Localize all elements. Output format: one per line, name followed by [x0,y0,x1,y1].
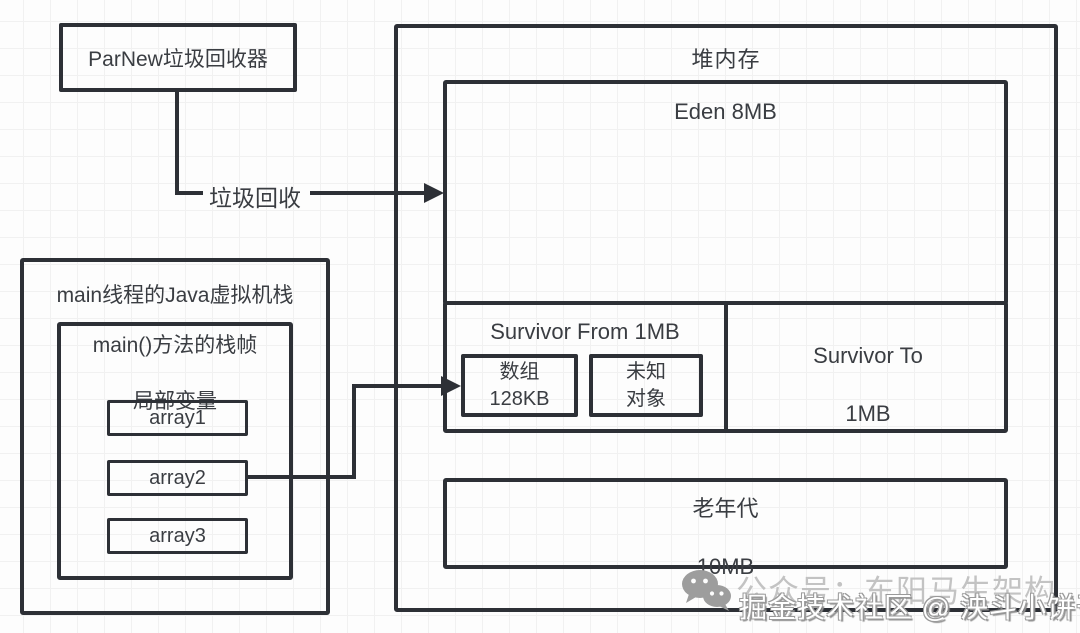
parnew-collector-label: ParNew垃圾回收器 [88,43,268,73]
eden-label: Eden 8MB [443,99,1008,125]
survivor-from-label: Survivor From 1MB [443,319,727,345]
var-label-array2: array2 [149,467,206,490]
var-label-array1: array1 [149,407,206,430]
heap-title: 堆内存 [394,42,1058,74]
var-box-array3: array3 [107,518,248,554]
survivor-to-label: Survivor To 1MB [728,341,1008,428]
ref-arrow-segment-b [352,384,442,388]
array-object-label: 数组 128KB [489,359,549,413]
survivor-to-line1: Survivor To [813,343,923,368]
unknown-object-line2: 对象 [626,388,666,410]
array-object-box: 数组 128KB [461,354,578,417]
gc-arrow-vertical-line [175,92,179,195]
ref-arrow-vertical-line [352,384,356,479]
survivor-to-line2: 1MB [845,401,890,426]
ref-arrowhead-icon [441,376,461,396]
unknown-object-box: 未知 对象 [589,354,703,417]
unknown-object-label: 未知 对象 [626,359,666,413]
array-object-line2: 128KB [489,388,549,410]
jvm-stack-title: main线程的Java虚拟机栈 [20,279,330,309]
gc-arrow-label: 垃圾回收 [197,179,313,213]
unknown-object-line1: 未知 [626,361,666,383]
ref-arrow-segment-a [248,475,356,479]
var-box-array2: array2 [107,460,248,496]
jvm-memory-diagram: ParNew垃圾回收器 垃圾回收 main线程的Java虚拟机栈 main()方… [0,0,1080,633]
old-gen-line1: 老年代 [692,496,758,521]
gc-arrowhead-icon [424,183,444,203]
var-label-array3: array3 [149,525,206,548]
wechat-icon [681,569,733,611]
parnew-collector-box: ParNew垃圾回收器 [59,23,297,92]
watermark-credit-text: 掘金技术社区 @ 泱斗小饼干 [739,586,1080,626]
var-box-array1: array1 [107,400,248,436]
stack-frame-title-line1: main()方法的栈帧 [93,334,258,357]
array-object-line1: 数组 [500,361,540,383]
